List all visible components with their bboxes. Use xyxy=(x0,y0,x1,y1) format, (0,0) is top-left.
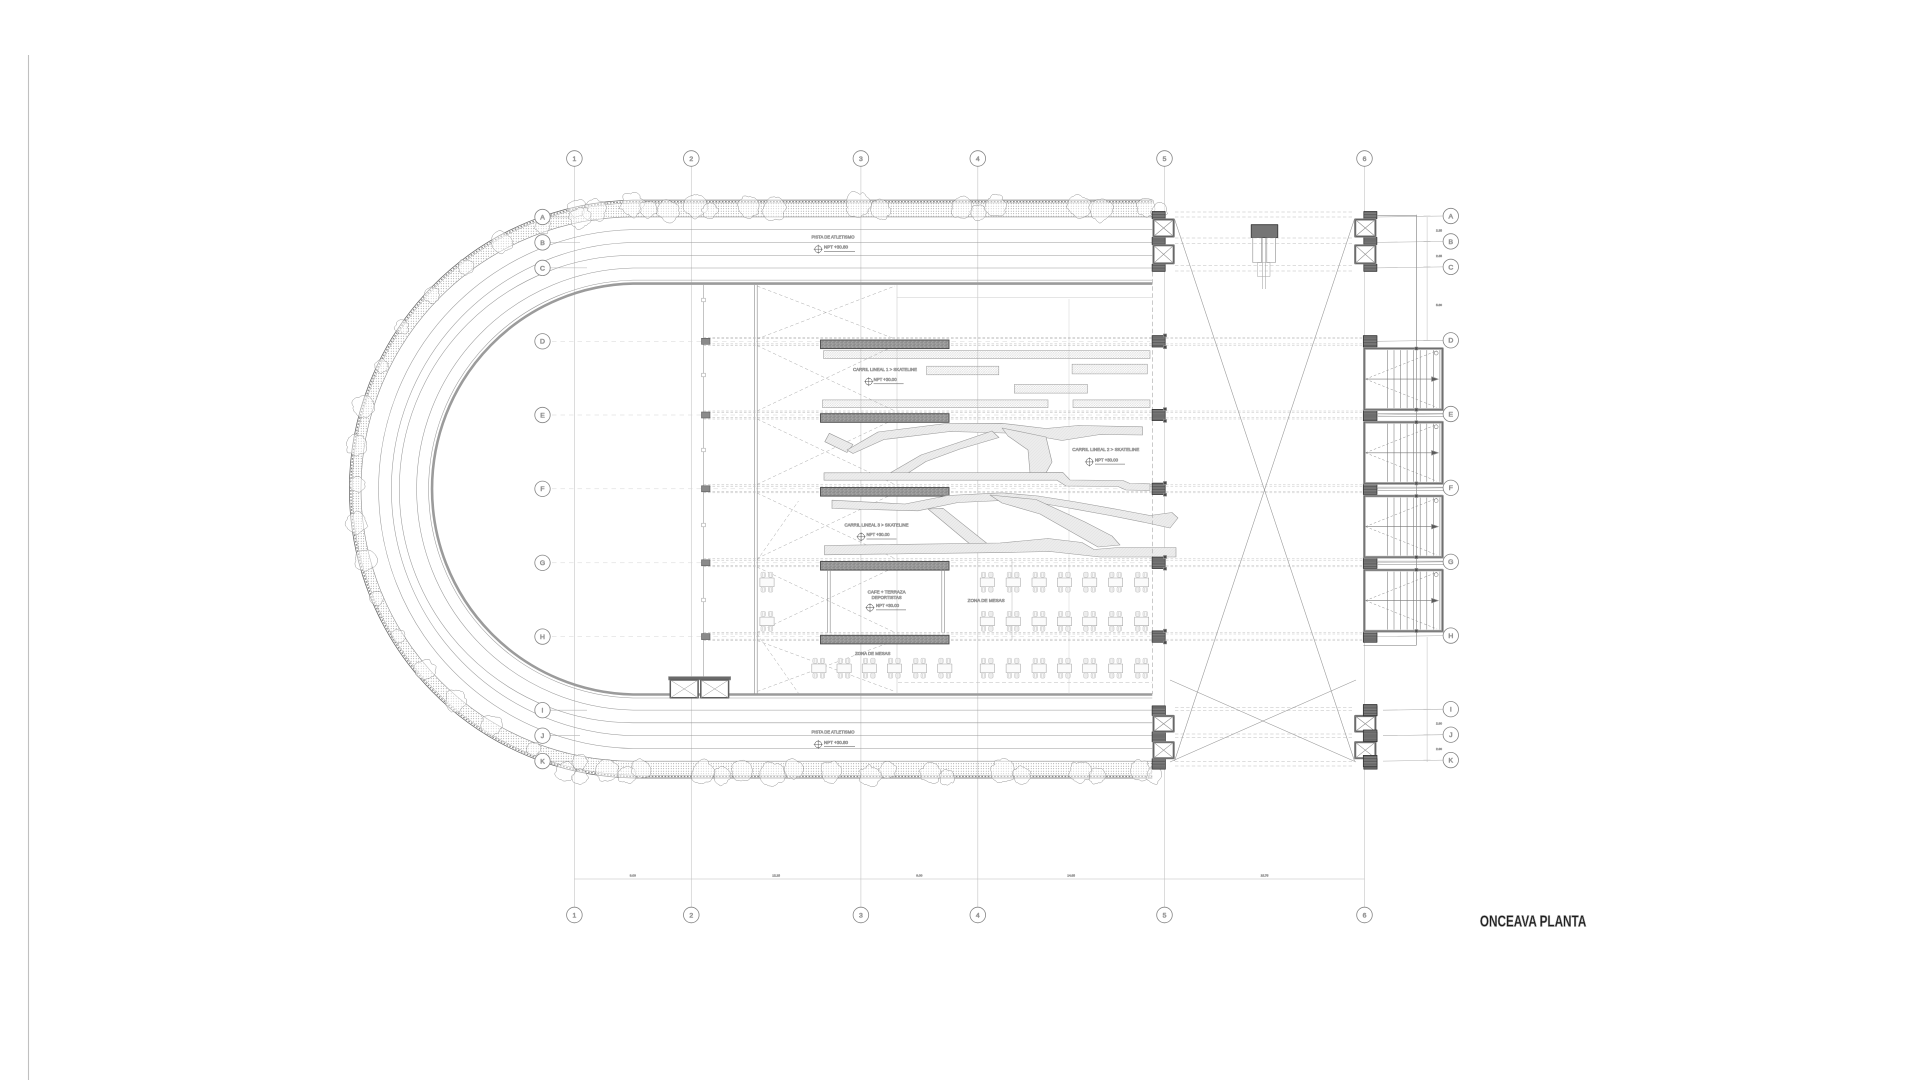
svg-text:NPT +30.80: NPT +30.80 xyxy=(824,245,849,250)
svg-text:ZONA DE MESAS: ZONA DE MESAS xyxy=(855,651,891,656)
svg-text:E: E xyxy=(540,412,545,419)
svg-text:D: D xyxy=(540,339,545,346)
svg-text:1: 1 xyxy=(573,913,577,920)
svg-text:J: J xyxy=(1449,732,1452,739)
svg-text:PISTA DE ATLETISMO: PISTA DE ATLETISMO xyxy=(812,234,855,239)
svg-text:NPT +30.00: NPT +30.00 xyxy=(874,377,898,382)
svg-text:NPT +30.00: NPT +30.00 xyxy=(867,532,891,537)
svg-text:H: H xyxy=(1448,633,1453,640)
svg-text:CARRIL LINEAL 2 > SKATELINE: CARRIL LINEAL 2 > SKATELINE xyxy=(1072,447,1139,452)
svg-text:NPT +30.00: NPT +30.00 xyxy=(876,603,900,608)
svg-text:A: A xyxy=(540,214,545,221)
svg-text:9.00: 9.00 xyxy=(630,874,636,878)
svg-text:2.35: 2.35 xyxy=(1436,229,1442,233)
svg-text:2.90: 2.90 xyxy=(1436,722,1442,726)
svg-text:5: 5 xyxy=(1163,913,1167,920)
svg-text:1: 1 xyxy=(573,156,577,163)
svg-text:I: I xyxy=(1450,707,1452,714)
svg-text:2.90: 2.90 xyxy=(1436,747,1442,751)
svg-text:3: 3 xyxy=(859,913,863,920)
svg-text:15.75: 15.75 xyxy=(1261,874,1269,878)
svg-text:DEPORTISTAS: DEPORTISTAS xyxy=(872,595,902,600)
svg-text:NPT +30.80: NPT +30.80 xyxy=(824,740,849,745)
svg-text:5: 5 xyxy=(1163,156,1167,163)
svg-text:5.80: 5.80 xyxy=(1436,303,1442,307)
svg-text:I: I xyxy=(542,708,544,715)
svg-text:K: K xyxy=(540,759,545,766)
svg-text:9.00: 9.00 xyxy=(916,874,922,878)
svg-text:J: J xyxy=(541,733,544,740)
svg-text:3: 3 xyxy=(859,156,863,163)
svg-text:F: F xyxy=(540,486,544,493)
svg-text:2: 2 xyxy=(689,156,693,163)
svg-text:ONCEAVA PLANTA: ONCEAVA PLANTA xyxy=(1480,913,1586,930)
svg-text:CARRIL LINEAL 1 > SKATELINE: CARRIL LINEAL 1 > SKATELINE xyxy=(853,367,917,372)
svg-text:F: F xyxy=(1449,485,1453,492)
svg-text:CAFE + TERRAZA: CAFE + TERRAZA xyxy=(868,589,906,594)
svg-text:4: 4 xyxy=(976,913,980,920)
svg-text:G: G xyxy=(540,560,545,567)
svg-text:A: A xyxy=(1449,213,1454,220)
svg-text:14.65: 14.65 xyxy=(1067,874,1075,878)
svg-text:4: 4 xyxy=(976,156,980,163)
svg-text:2: 2 xyxy=(689,913,693,920)
svg-text:ZONA DE MESAS: ZONA DE MESAS xyxy=(968,598,1005,603)
svg-text:2.35: 2.35 xyxy=(1436,254,1442,258)
svg-text:NPT +30.00: NPT +30.00 xyxy=(1095,457,1119,462)
svg-text:PISTA DE ATLETISMO: PISTA DE ATLETISMO xyxy=(812,730,855,735)
svg-text:H: H xyxy=(540,634,545,641)
svg-text:B: B xyxy=(1449,239,1454,246)
svg-text:6: 6 xyxy=(1363,156,1367,163)
svg-text:12.15: 12.15 xyxy=(772,874,780,878)
svg-text:E: E xyxy=(1449,411,1454,418)
svg-text:C: C xyxy=(540,265,545,272)
svg-text:B: B xyxy=(540,240,545,247)
svg-text:C: C xyxy=(1448,264,1453,271)
svg-text:CARRIL LINEAL 3 > SKATELINE: CARRIL LINEAL 3 > SKATELINE xyxy=(845,523,909,528)
svg-text:G: G xyxy=(1448,559,1453,566)
svg-text:6: 6 xyxy=(1363,913,1367,920)
svg-text:D: D xyxy=(1448,338,1453,345)
svg-text:K: K xyxy=(1449,758,1454,765)
